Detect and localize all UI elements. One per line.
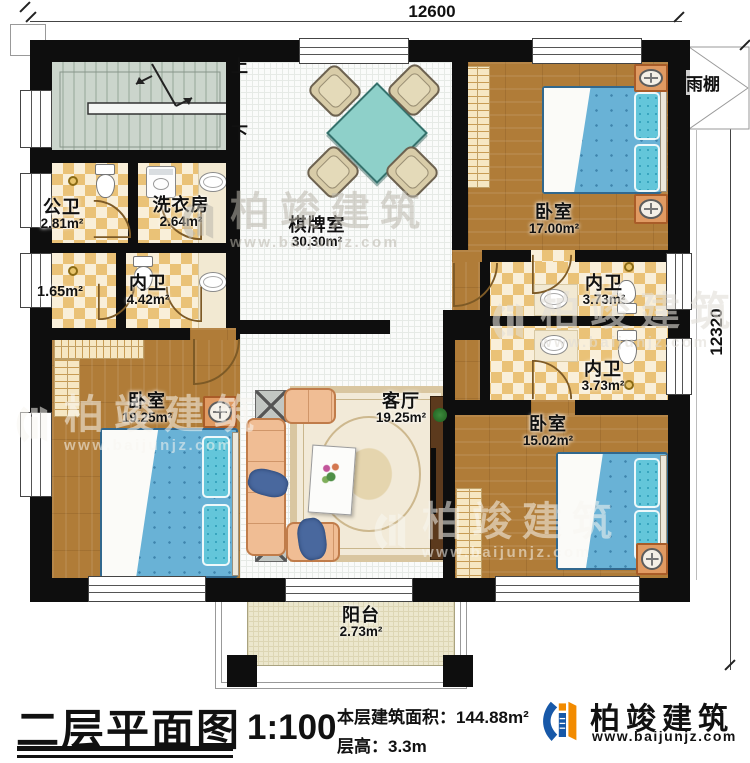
- window-bottom-1: [88, 576, 206, 602]
- room-area: 15.02m²: [523, 434, 573, 449]
- label-balcony: 阳台 2.73m²: [340, 606, 383, 640]
- eave-line: [696, 130, 697, 580]
- pillow-ne-1: [634, 92, 660, 140]
- room-name: 卧室: [523, 415, 573, 434]
- door-hallway: [453, 262, 498, 307]
- label-bath-e2: 内卫 3.73m²: [582, 360, 625, 394]
- lamp-bath-e2: [624, 380, 634, 390]
- door-bath-e2: [532, 360, 572, 400]
- nightstand-ne-top: [634, 64, 668, 92]
- room-name: 内卫: [582, 360, 625, 379]
- headboard-sw: [232, 432, 239, 576]
- lamp-public-bath: [68, 176, 78, 186]
- wall-bath-rows: [52, 243, 226, 253]
- sink-inner-bath-w: [199, 272, 227, 292]
- room-area: 4.42m²: [127, 293, 170, 308]
- brand-website: www.baijunjz.com: [592, 728, 737, 744]
- window-left-1: [20, 90, 52, 148]
- room-area: 19.25m²: [376, 411, 426, 426]
- corner-tick: [19, 1, 30, 12]
- room-name: 卧室: [122, 392, 172, 411]
- room-name: 卧室: [529, 203, 579, 222]
- label-living: 客厅 19.25m²: [376, 392, 426, 426]
- plant: [433, 408, 447, 422]
- door-inner-bath-w: [166, 286, 202, 322]
- door-public-bath: [93, 200, 131, 238]
- label-bath-e1: 内卫 3.73m²: [583, 274, 626, 308]
- floor-height-line: 层高：3.3m: [337, 732, 427, 757]
- door-bedroom-sw: [193, 338, 240, 385]
- nightstand-se: [636, 543, 668, 575]
- sink-laundry: [199, 172, 227, 192]
- floor-height-label: 层高：: [337, 737, 388, 756]
- headboard-ne: [660, 88, 667, 192]
- top-dimension-label: 12600: [397, 2, 467, 22]
- room-name: 阳台: [340, 606, 383, 625]
- floor-height-value: 3.3m: [388, 737, 427, 756]
- room-name: 客厅: [376, 392, 426, 411]
- window-right-1: [666, 253, 692, 310]
- label-bedroom-ne: 卧室 17.00m²: [529, 203, 579, 237]
- pillow-sw-2: [202, 504, 230, 566]
- room-area: 2.73m²: [340, 625, 383, 640]
- room-name: 棋牌室: [289, 216, 346, 235]
- room-name: 内卫: [127, 274, 170, 293]
- nightstand-ne-bottom: [634, 194, 668, 224]
- door-bath-e1: [532, 254, 572, 294]
- lamp-nook: [68, 266, 78, 276]
- stairs-up-label: 上: [231, 52, 248, 77]
- tv-screen: [431, 448, 436, 514]
- pillow-ne-2: [634, 144, 660, 192]
- nightstand-sw: [203, 396, 237, 428]
- label-inner-bath-w: 内卫 4.42m²: [127, 274, 170, 308]
- room-area: 30.30m²: [289, 235, 346, 250]
- window-left-4: [20, 412, 52, 497]
- door-gap-bath-e2: [531, 400, 575, 415]
- room-area: 2.81m²: [41, 217, 84, 232]
- right-dimension-line: [730, 58, 731, 670]
- balcony-column-right: [443, 655, 473, 687]
- window-right-2: [666, 338, 692, 395]
- top-dimension-line: [30, 21, 682, 22]
- room-area: 17.00m²: [529, 222, 579, 237]
- room-area: 19.25m²: [122, 411, 172, 426]
- table-flowers: [320, 460, 342, 488]
- room-name: 内卫: [583, 274, 626, 293]
- label-nook: 1.65m²: [37, 285, 83, 301]
- window-top-1: [299, 38, 409, 64]
- pillow-sw-1: [202, 436, 230, 498]
- washing-machine: [146, 166, 176, 198]
- room-name: 公卫: [41, 198, 84, 217]
- wall-baths-divider: [480, 316, 668, 326]
- label-bedroom-sw: 卧室 19.25m²: [122, 392, 172, 426]
- wall-bedroom-ne-left: [452, 62, 468, 250]
- stairwell: [52, 62, 228, 157]
- room-area: 3.73m²: [582, 379, 625, 394]
- right-dimension-label: 12320: [707, 297, 727, 367]
- lamp-bath-e1: [624, 262, 634, 272]
- title-underline-2: [17, 755, 233, 758]
- sink-bath-e2: [540, 335, 568, 355]
- floor-area-label: 本层建筑面积：: [337, 708, 456, 727]
- room-area: 3.73m²: [583, 293, 626, 308]
- wall-mid-horizontal: [240, 320, 390, 334]
- window-bottom-2: [495, 576, 640, 602]
- wall-west-vertical: [226, 62, 240, 340]
- window-top-2: [532, 38, 642, 64]
- label-game-room: 棋牌室 30.30m²: [289, 216, 346, 250]
- title-underline-1: [17, 746, 233, 751]
- toilet-public-bath: [94, 164, 116, 198]
- label-laundry: 洗衣房 2.64m²: [153, 196, 210, 230]
- floor-plan-page: 12600 12320 雨棚: [0, 0, 750, 763]
- armchair-top: [284, 388, 336, 424]
- brand-logo-icon: [538, 692, 586, 750]
- wall-living-right: [443, 320, 455, 578]
- room-name: 洗衣房: [153, 196, 210, 215]
- pillow-se-1: [634, 458, 660, 508]
- floor-area-line: 本层建筑面积：144.88m²: [337, 703, 529, 728]
- floor-area-value: 144.88m²: [456, 708, 529, 727]
- closet-bedroom-se: [456, 488, 482, 583]
- door-gap-hall: [452, 250, 482, 262]
- balcony-column-left: [227, 655, 257, 687]
- room-area: 1.65m²: [37, 285, 83, 301]
- closet-bedroom-sw-side: [54, 359, 80, 417]
- room-area: 2.64m²: [153, 215, 210, 230]
- drawing-scale: 1:100: [247, 708, 337, 748]
- stairs-down-label: 下: [231, 119, 248, 144]
- wall-under-stairs: [30, 150, 228, 163]
- label-bedroom-se: 卧室 15.02m²: [523, 415, 573, 449]
- canopy-label: 雨棚: [686, 70, 720, 95]
- balcony-sliding-door: [285, 578, 413, 602]
- label-public-bath: 公卫 2.81m²: [41, 198, 84, 232]
- wall-outer-right: [668, 40, 690, 600]
